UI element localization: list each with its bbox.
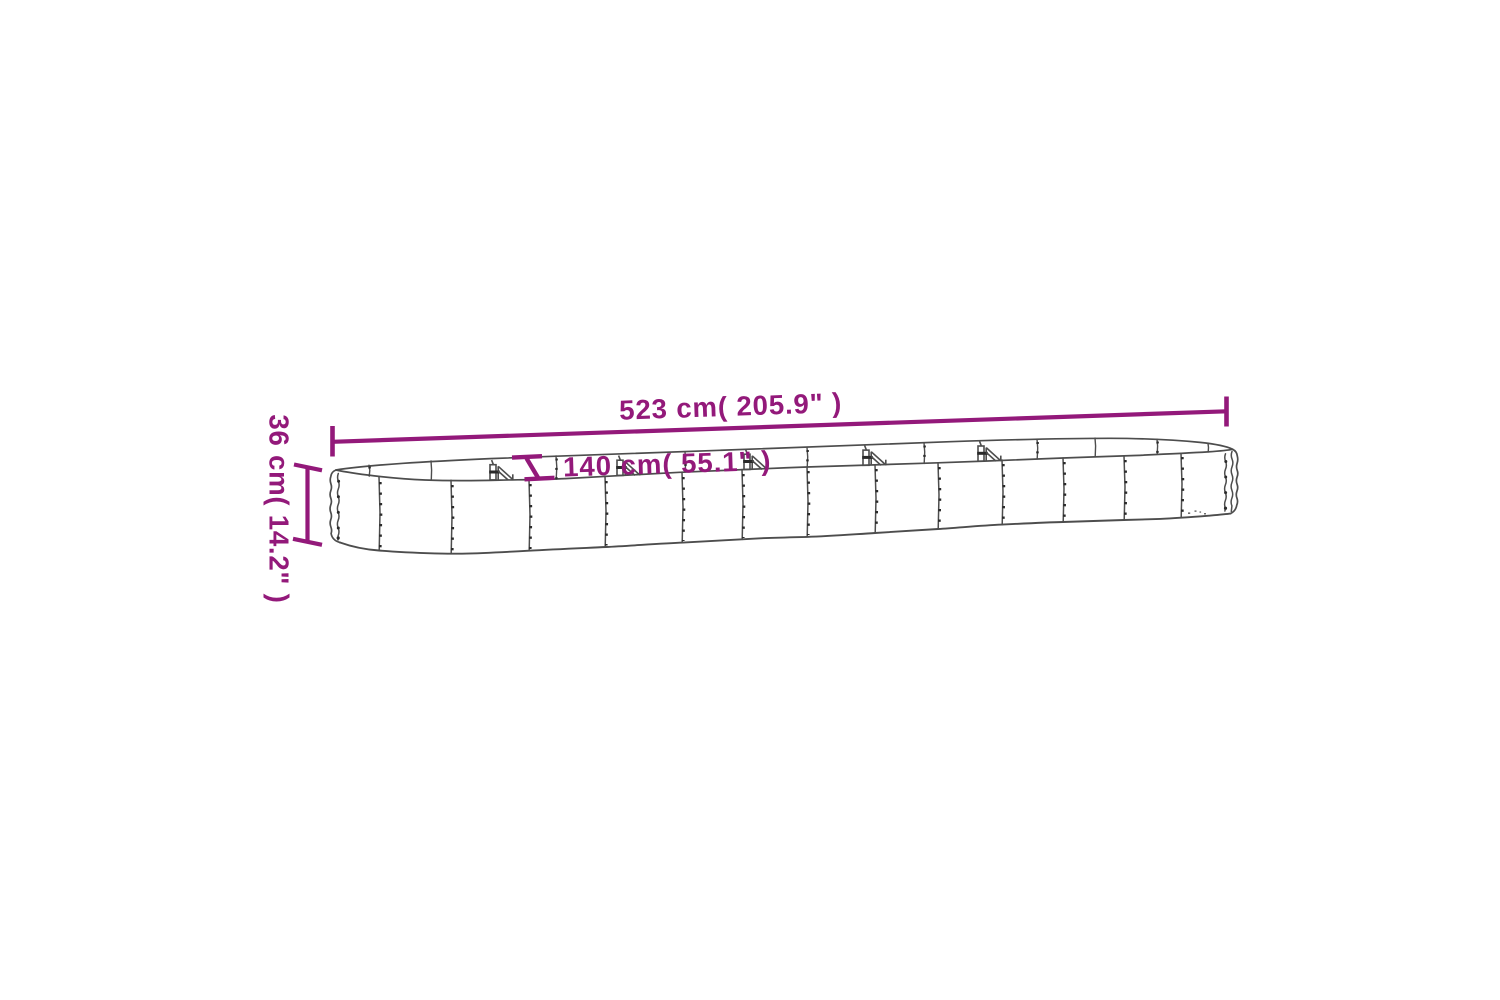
svg-text:36 cm( 14.2" ): 36 cm( 14.2" ) <box>264 414 295 603</box>
svg-text:523 cm( 205.9" ): 523 cm( 205.9" ) <box>619 387 843 426</box>
svg-text:140 cm( 55.1" ): 140 cm( 55.1" ) <box>563 445 772 483</box>
